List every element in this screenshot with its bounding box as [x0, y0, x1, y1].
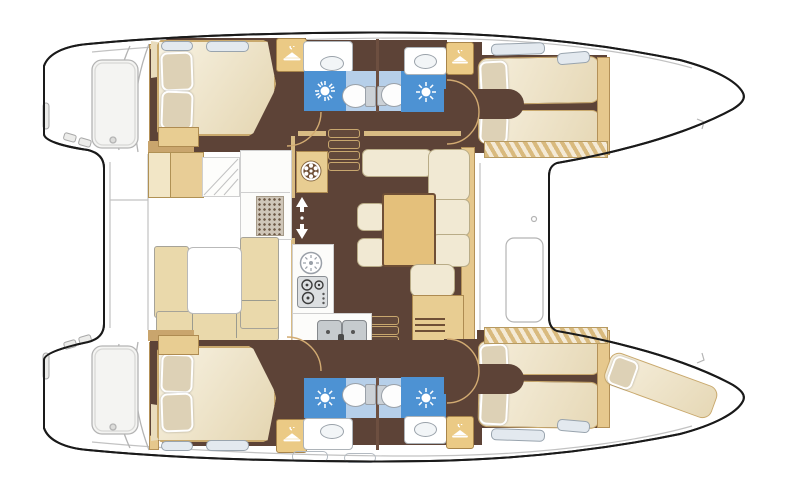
pillow: [160, 392, 193, 432]
cockpit-grate: [256, 196, 284, 236]
deck-hatch: [206, 41, 249, 52]
bench-seam: [241, 300, 276, 301]
deck-hatch: [557, 419, 591, 434]
deck-hatch: [491, 428, 545, 442]
stove-burners: [297, 276, 328, 308]
saloon-table: [382, 193, 436, 267]
stbd-nightstand: [158, 335, 199, 355]
cockpit-bench-right: [240, 237, 279, 329]
transom-steps: [115, 44, 149, 450]
companionway-steps-port: [326, 129, 364, 179]
helm-lockers: [92, 60, 138, 434]
sink-drain: [326, 330, 330, 334]
washbasin: [414, 422, 437, 437]
hanger-icon: [281, 427, 303, 445]
stbd-inner-deck-step: [484, 327, 608, 344]
berth-divider-wedge: [444, 364, 524, 394]
cockpit-bench-left: [154, 246, 189, 318]
deck-hatch-outline: [292, 451, 328, 462]
cockpit-module: [148, 152, 172, 198]
saloon-lounge-seat: [410, 264, 455, 297]
deck-hatch: [491, 42, 545, 56]
washbasin: [320, 424, 344, 439]
pillow: [160, 90, 193, 130]
port-nightstand: [158, 127, 199, 147]
hanger-icon: [450, 424, 470, 441]
deck-hatch: [161, 41, 193, 51]
hanger-icon: [281, 46, 303, 64]
saloon-settee-seat: [432, 234, 470, 267]
pillow: [160, 51, 193, 91]
cockpit-steps: [202, 157, 240, 197]
washbasin: [320, 56, 344, 71]
deck-hatch: [161, 441, 193, 451]
hanger-icon: [450, 50, 470, 67]
cabinet-grille: [415, 318, 445, 336]
deck-hatch-outline: [344, 453, 376, 463]
cockpit-module: [170, 152, 204, 198]
shower-rose-icon: [308, 381, 342, 415]
sink-drain: [351, 330, 355, 334]
shower-rose-icon: [308, 74, 342, 108]
companionway-arrows-icon: [294, 196, 310, 240]
forepeak-berth: [601, 350, 720, 421]
deck-hatch: [206, 440, 249, 451]
port-fwd-wardrobe: [446, 42, 474, 75]
port-inner-deck-step: [484, 141, 608, 158]
berth-divider-wedge: [444, 89, 524, 119]
vent-fan-icon: [300, 160, 322, 182]
counter-divider: [240, 192, 290, 193]
cockpit-table: [187, 247, 242, 314]
stbd-fwd-wardrobe: [446, 416, 474, 449]
washbasin: [414, 54, 437, 69]
saloon-wall: [364, 131, 461, 136]
toilet-tank: [365, 86, 376, 107]
saloon-settee-seat: [430, 199, 470, 236]
saloon-wall: [298, 131, 326, 136]
saloon-settee-back: [362, 149, 432, 177]
shower-rose-icon: [409, 381, 443, 415]
toilet-tank: [365, 384, 376, 405]
bench-seam: [236, 312, 237, 338]
pillow: [605, 354, 640, 391]
round-hob: [299, 251, 323, 275]
pillow: [160, 353, 193, 393]
catamaran-floorplan: [0, 0, 800, 482]
shower-rose-icon: [409, 75, 443, 109]
stern-cleats: [43, 103, 92, 379]
